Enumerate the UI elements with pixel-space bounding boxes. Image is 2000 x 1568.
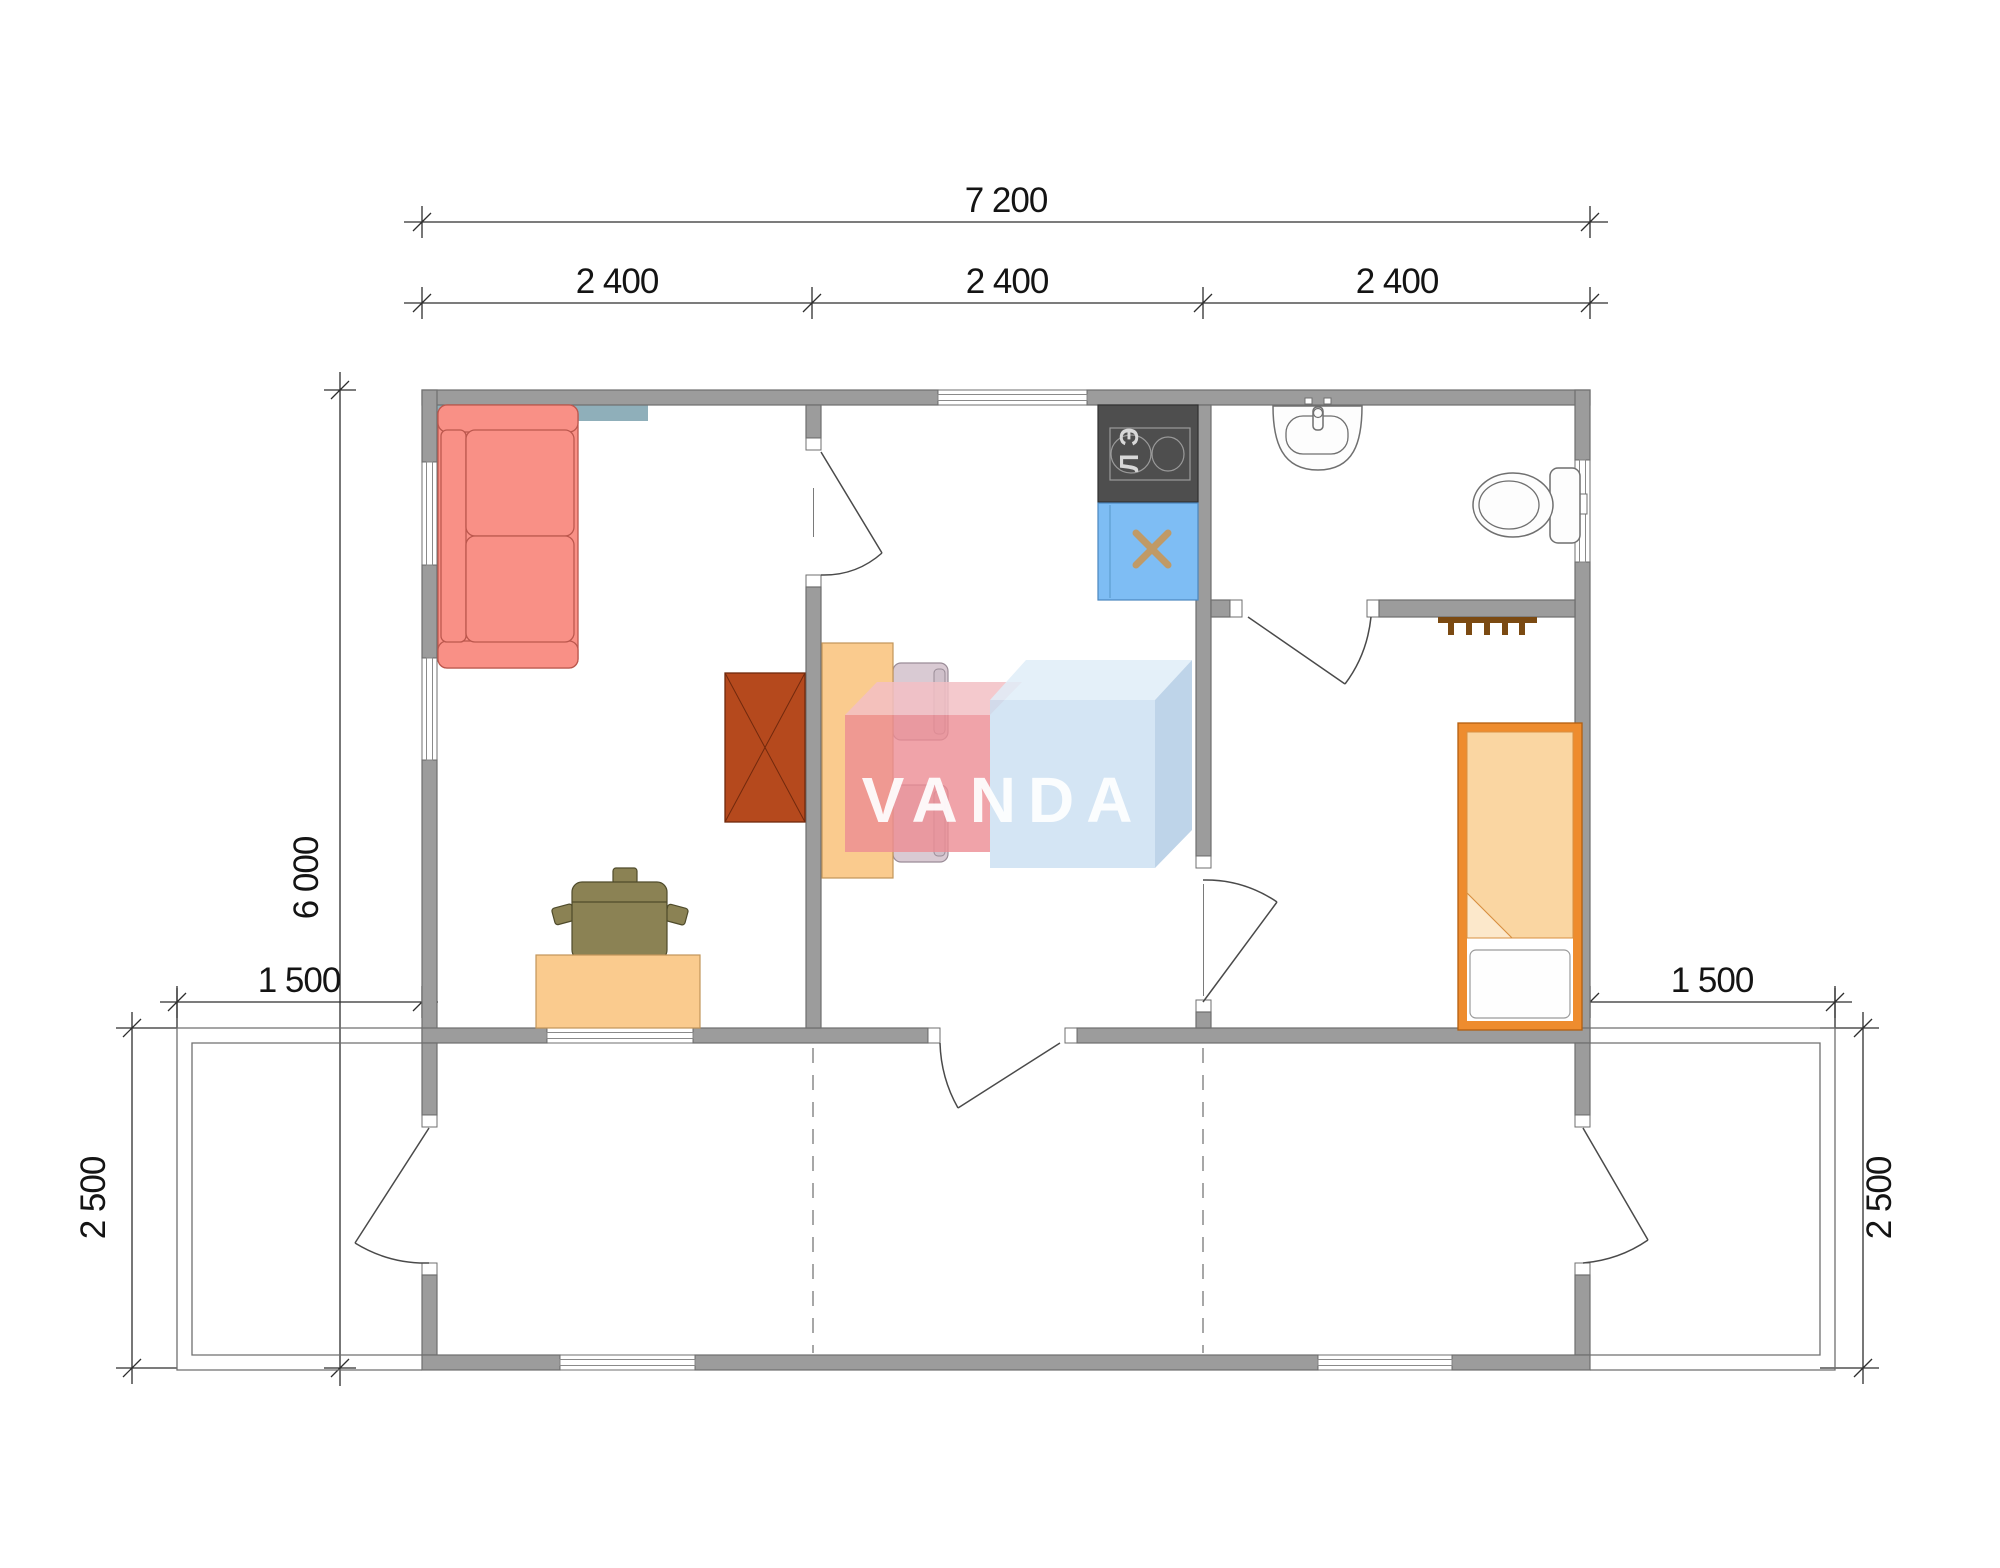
dim-module-2: 2 400	[966, 262, 1049, 301]
window-veranda-right	[1318, 1355, 1452, 1370]
dim-porch-ext-right: 1 500	[1671, 961, 1754, 1000]
pillow	[1470, 950, 1570, 1018]
dim-module-1: 2 400	[576, 262, 659, 301]
desk	[536, 955, 700, 1028]
dim-module-3: 2 400	[1356, 262, 1439, 301]
dim-porch-depth-right: 2 500	[1860, 1156, 1899, 1239]
desk-chair	[551, 868, 688, 960]
stove: ЭЛ	[1098, 405, 1198, 502]
kitchen-sink	[1098, 503, 1198, 600]
dim-porch-ext-left: 1 500	[258, 961, 341, 1000]
floor-plan-svg: 7 200 2 400 2 400 2 400 6 000 1 500	[0, 0, 2000, 1563]
dim-top-total: 7 200	[965, 181, 1048, 220]
toilet	[1473, 468, 1580, 543]
door-hall-bedroom	[1203, 880, 1277, 1002]
dim-porch-depth-left: 2 500	[74, 1156, 113, 1239]
floor-plan-page: 7 200 2 400 2 400 2 400 6 000 1 500	[0, 0, 2000, 1563]
bed	[1458, 723, 1582, 1030]
door-main-entrance	[940, 1043, 1060, 1108]
window-living-left-2	[422, 658, 437, 760]
workplace	[536, 868, 700, 1028]
sofa	[438, 405, 578, 668]
window-veranda-left	[560, 1355, 695, 1370]
window-living-left-1	[422, 462, 437, 565]
door-veranda-left	[355, 1128, 429, 1263]
window-kitchen-top	[938, 390, 1087, 405]
bath-sink	[1273, 398, 1362, 470]
windows	[422, 390, 1590, 1370]
coat-hooks	[1438, 617, 1537, 635]
door-bathroom	[1248, 617, 1371, 684]
vanda-logo-text: VANDA	[862, 764, 1145, 836]
vanda-watermark: VANDA	[845, 660, 1192, 868]
door-living-kitchen	[821, 452, 882, 575]
dim-side-height: 6 000	[287, 836, 326, 919]
door-veranda-right	[1583, 1128, 1648, 1263]
window-living-bottom	[547, 1028, 693, 1043]
wardrobe	[725, 673, 805, 822]
blanket	[1467, 732, 1573, 938]
walls	[422, 390, 1590, 1370]
